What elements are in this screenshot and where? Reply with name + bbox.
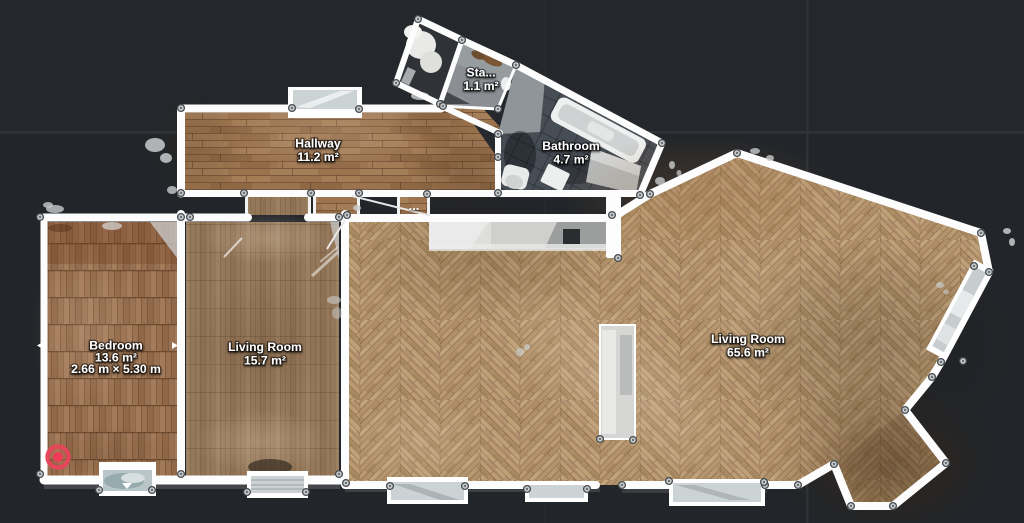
svg-text:Hallway: Hallway [295,137,341,151]
svg-text:65.6 m²: 65.6 m² [727,346,769,360]
svg-text:2.66 m × 5.30 m: 2.66 m × 5.30 m [71,362,161,376]
svg-text:Bathroom: Bathroom [542,139,600,153]
svg-text:4.7 m²: 4.7 m² [553,153,588,167]
svg-text:11.2 m²: 11.2 m² [297,150,338,164]
svg-text:...: ... [409,198,420,213]
svg-text:Sta...: Sta... [466,66,495,80]
svg-text:1.1 m²: 1.1 m² [463,79,498,93]
svg-text:Living Room: Living Room [228,340,302,354]
svg-text:15.7 m²: 15.7 m² [244,354,286,368]
svg-text:Living Room: Living Room [711,332,785,346]
